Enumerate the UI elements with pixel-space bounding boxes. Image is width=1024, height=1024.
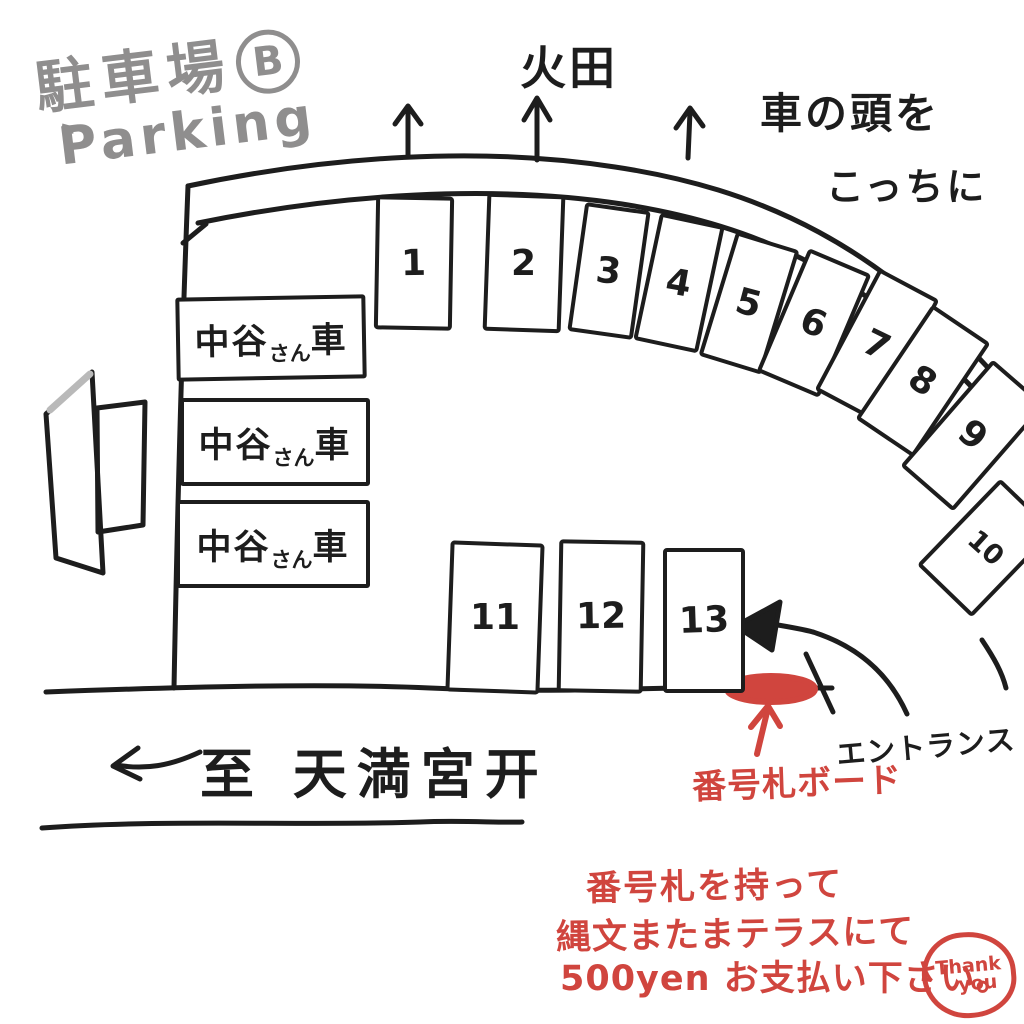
space-number: 12 (576, 596, 627, 638)
parking-space-12: 12 (557, 539, 646, 693)
car-label: 車 (313, 519, 350, 570)
parking-space-11: 11 (445, 540, 544, 694)
space-number: 5 (732, 280, 767, 326)
building-outline (97, 402, 145, 532)
building-shading (50, 374, 90, 410)
car-label: 車 (310, 311, 348, 363)
hand-drawn-parking-map: 1 2 3 4 5 6 7 8 9 10 11 12 13 中谷さん車 中谷さん… (0, 0, 1024, 1024)
space-number: 11 (470, 597, 520, 638)
space-number: 3 (594, 249, 623, 292)
payment-notice-line1: 番号札を持って (586, 856, 844, 911)
space-number: 7 (857, 321, 897, 369)
space-number: 2 (511, 243, 536, 284)
up-arrow-icon (524, 98, 550, 160)
bottom-road-lower-line (42, 821, 522, 828)
space-number: 8 (902, 357, 945, 405)
number-board-label: 番号札ボード (691, 752, 903, 808)
up-arrow-icon (676, 108, 703, 158)
parking-lot-b-badge: B (232, 26, 303, 97)
space-number: 1 (401, 242, 427, 283)
reserved-space-nakatani-1: 中谷さん車 (175, 294, 366, 381)
red-pointer-arrow-icon (751, 706, 780, 754)
owner-name: 中谷 (196, 519, 270, 570)
reserved-space-nakatani-3: 中谷さん車 (176, 500, 370, 588)
space-number: 9 (950, 412, 995, 460)
car-direction-note-line2: こっちに (826, 156, 987, 211)
parking-space-13: 13 (663, 548, 745, 693)
destination-label: 至 天満宮开 (200, 730, 549, 809)
space-number: 4 (663, 261, 695, 306)
reserved-space-nakatani-2: 中谷さん車 (180, 398, 370, 486)
owner-honorific: さん (273, 442, 315, 472)
owner-name: 中谷 (198, 417, 272, 468)
thanks-text: you (958, 973, 998, 994)
field-label: 火田 (520, 32, 618, 98)
car-label: 車 (315, 417, 352, 468)
parking-space-1: 1 (374, 195, 454, 330)
road-continuation-stroke (982, 640, 1006, 688)
owner-honorific: さん (271, 544, 313, 574)
car-direction-note-line1: 車の頭を (760, 80, 940, 141)
left-arrow-icon (113, 748, 200, 779)
up-arrow-icon (395, 106, 421, 155)
owner-honorific: さん (269, 337, 312, 368)
parking-space-2: 2 (483, 193, 566, 334)
space-number: 6 (795, 299, 833, 346)
space-number: 10 (962, 524, 1011, 572)
space-number: 13 (678, 599, 730, 642)
owner-name: 中谷 (194, 313, 269, 365)
